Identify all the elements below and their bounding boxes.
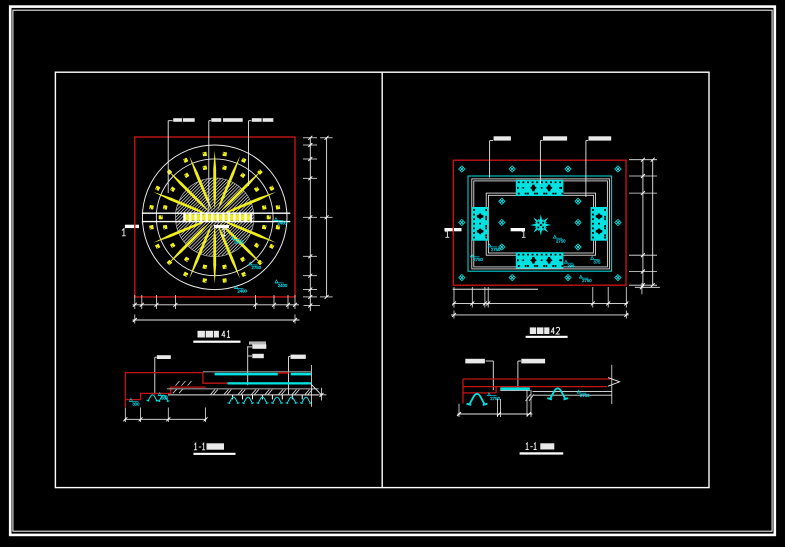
svg-text:2400: 2400: [278, 283, 288, 288]
svg-text:2750: 2750: [580, 393, 590, 398]
svg-text:298: 298: [567, 263, 575, 268]
svg-text:2750: 2750: [556, 238, 566, 243]
svg-text:300: 300: [132, 401, 140, 406]
svg-text:2750: 2750: [582, 278, 592, 283]
svg-text:380: 380: [161, 396, 169, 401]
svg-text:2750: 2750: [473, 257, 483, 262]
svg-text:2425: 2425: [234, 239, 244, 244]
svg-text:2750: 2750: [252, 265, 262, 270]
svg-text:2750: 2750: [490, 396, 500, 401]
svg-text:375: 375: [593, 259, 601, 264]
svg-text:2400: 2400: [237, 289, 247, 294]
svg-text:2400: 2400: [277, 221, 287, 226]
svg-text:2750: 2750: [491, 247, 501, 252]
